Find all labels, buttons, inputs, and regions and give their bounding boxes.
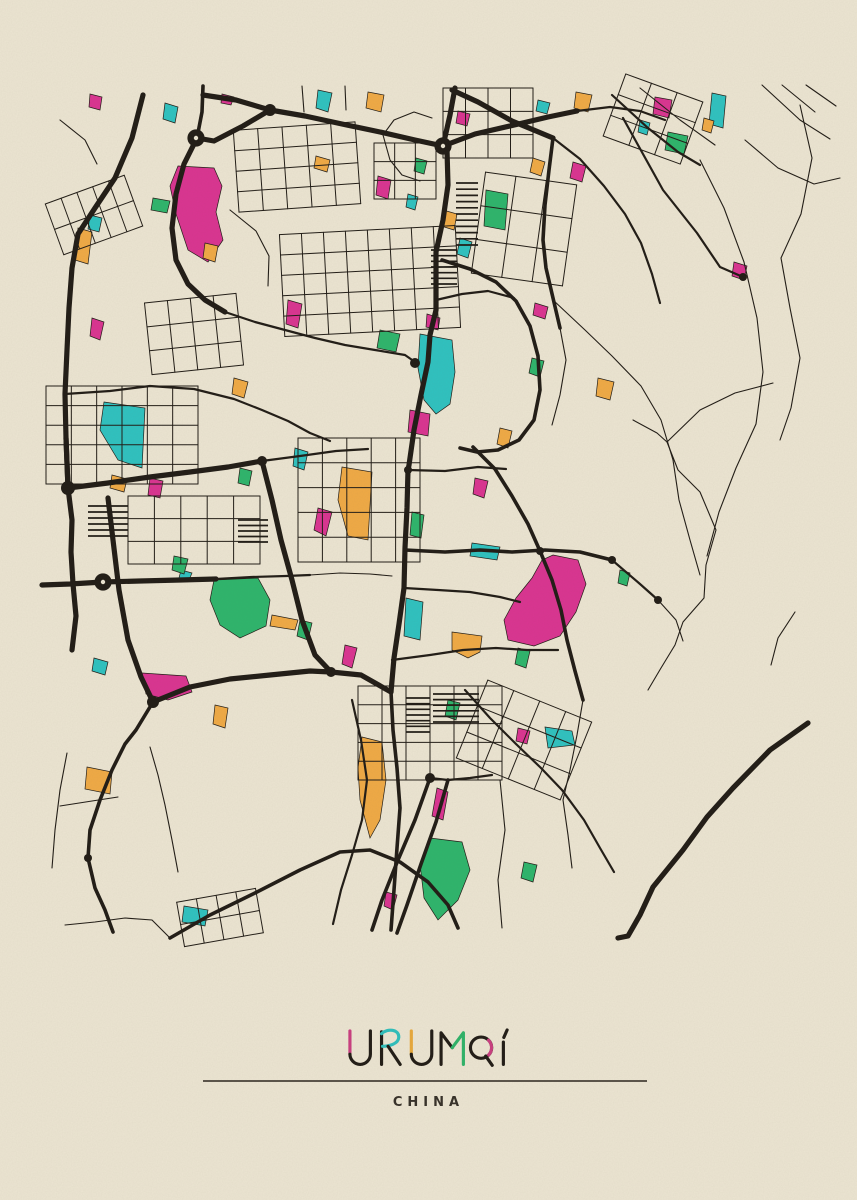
title-letter-U [411, 1031, 431, 1064]
title-letter-Q [470, 1037, 492, 1065]
roads-layer [42, 85, 840, 938]
title-letter-U [350, 1031, 370, 1064]
city-map [0, 0, 857, 1200]
map-poster: CHINA [0, 0, 857, 1200]
title-letter-M [441, 1033, 463, 1065]
junctions-layer [61, 104, 747, 862]
country-label: CHINA [0, 1095, 857, 1110]
poster-title [350, 1030, 507, 1065]
title-letter-R [382, 1030, 401, 1064]
title-letter-I [503, 1030, 507, 1064]
